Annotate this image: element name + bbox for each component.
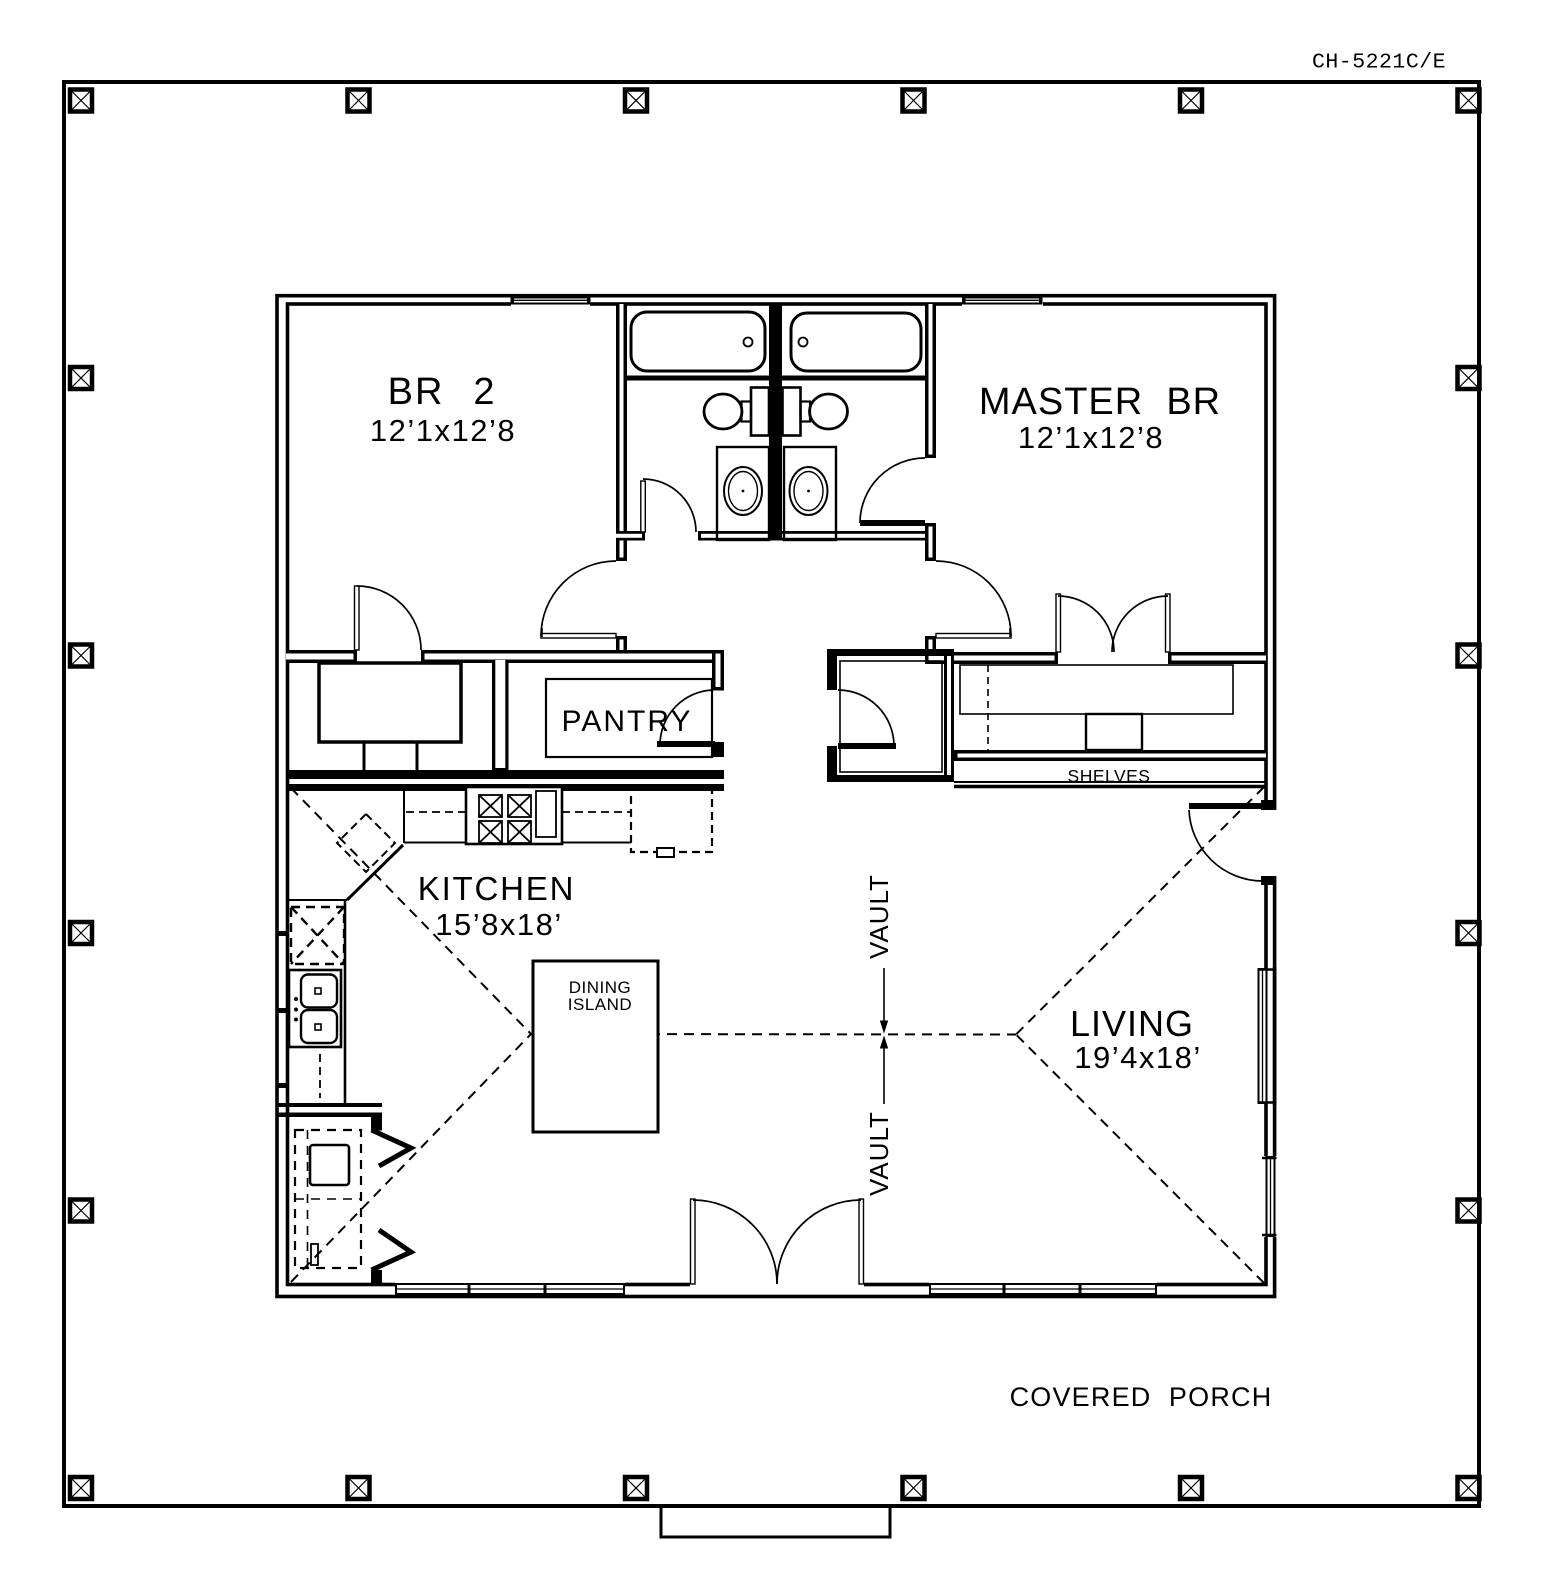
svg-text:12’1x12’8: 12’1x12’8: [1018, 420, 1164, 455]
svg-text:KITCHEN: KITCHEN: [418, 870, 575, 907]
svg-text:19’4x18’: 19’4x18’: [1074, 1040, 1201, 1075]
svg-text:15’8x18’: 15’8x18’: [435, 907, 562, 942]
svg-text:12’1x12’8: 12’1x12’8: [370, 413, 516, 448]
svg-text:BR: BR: [388, 371, 445, 413]
svg-text:2: 2: [473, 371, 494, 413]
svg-text:VAULT: VAULT: [864, 1111, 894, 1196]
svg-text:COVERED PORCH: COVERED PORCH: [1010, 1382, 1273, 1412]
svg-text:SHELVES: SHELVES: [1068, 766, 1151, 786]
svg-text:MASTER BR: MASTER BR: [979, 381, 1221, 423]
svg-text:PANTRY: PANTRY: [562, 705, 693, 738]
svg-text:CH-5221C/E: CH-5221C/E: [1312, 51, 1446, 75]
svg-text:LIVING: LIVING: [1070, 1003, 1194, 1044]
svg-text:ISLAND: ISLAND: [568, 995, 632, 1014]
svg-text:VAULT: VAULT: [864, 874, 894, 959]
